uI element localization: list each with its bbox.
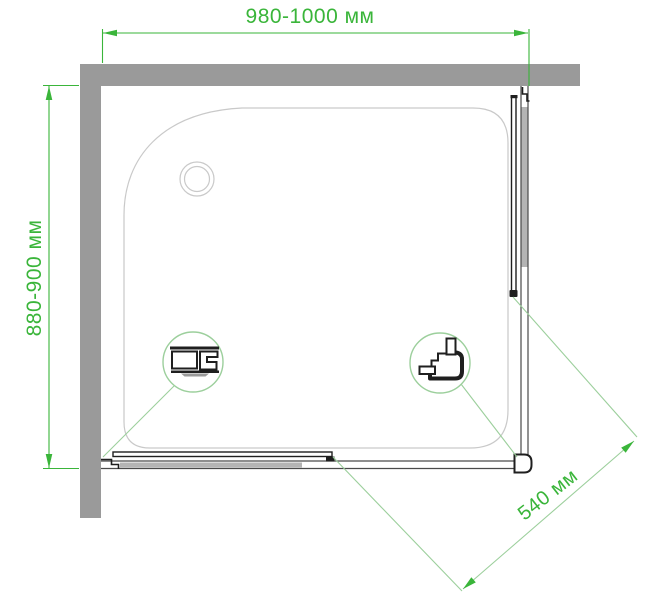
right-fixed-panel-gray: [522, 107, 528, 267]
dim-line: [463, 441, 634, 589]
right-sliding-door-glass: [512, 97, 517, 295]
left-wall: [80, 64, 101, 518]
arrow-left-icon: [103, 30, 117, 37]
drain-inner-circle: [185, 167, 210, 192]
right-door-top-cap: [511, 95, 518, 98]
shower-tray: [124, 108, 508, 448]
arrow-down-icon: [46, 454, 53, 468]
drain-outer-circle: [180, 162, 214, 196]
bottom-side-assembly: [101, 452, 532, 473]
dim-extension-line: [513, 297, 637, 437]
bottom-sliding-door-glass: [113, 452, 332, 457]
right-door-bottom-handle: [510, 290, 518, 297]
top-wall: [80, 64, 580, 86]
walls: [80, 64, 580, 518]
detail-callouts: [103, 332, 517, 457]
dimension-door-opening: [333, 297, 637, 592]
bottom-fixed-panel-gray: [120, 463, 302, 468]
arrow-right-icon: [514, 30, 528, 37]
width-dimension-label: 980-1000 мм: [210, 4, 410, 30]
corner-post: [515, 455, 532, 473]
arrow-up-icon: [46, 86, 53, 100]
height-dimension-label: 880-900 мм: [22, 178, 48, 378]
technical-drawing-canvas: 980-1000 мм 880-900 мм 540 мм: [0, 0, 646, 600]
dimension-left-height: [43, 86, 79, 469]
right-side-assembly: [510, 86, 530, 455]
dim-extension-line: [333, 457, 462, 591]
tray-outline: [124, 108, 508, 448]
